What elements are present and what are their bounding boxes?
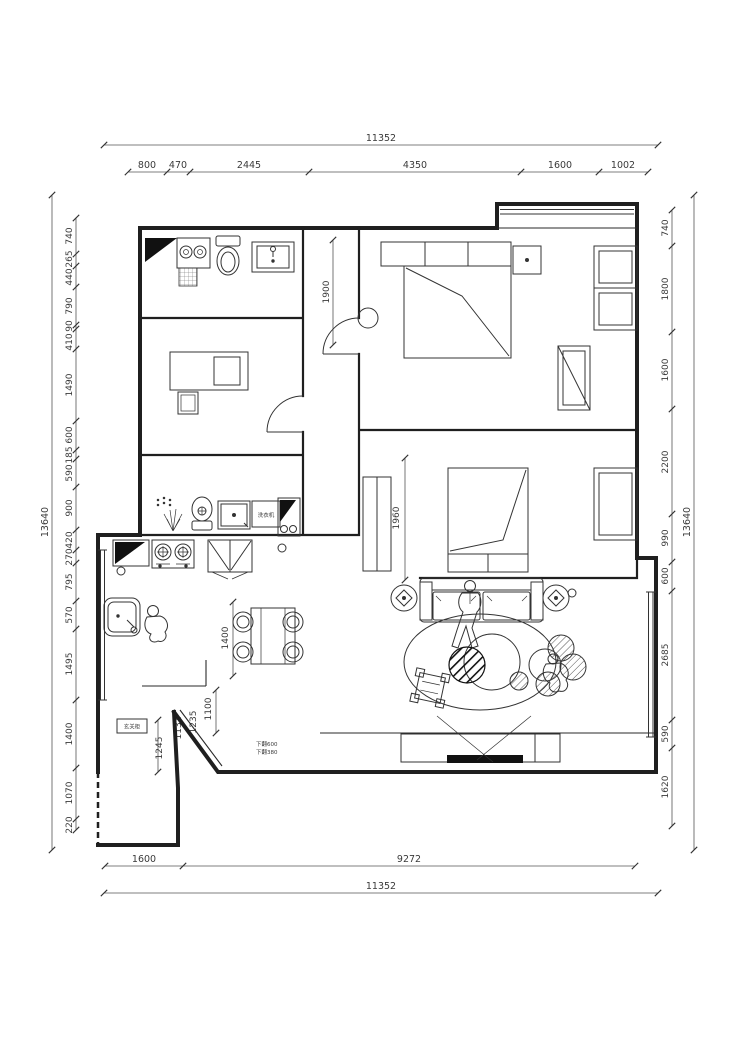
desk [170, 352, 248, 390]
tv-screen [447, 755, 523, 763]
ceiling-note-1: 下翻600 [256, 740, 278, 748]
dim-bottom-0: 1600 [132, 854, 156, 865]
side-lamp-left [391, 585, 417, 611]
dining-chairs [233, 612, 303, 662]
toilet-2-icon [192, 497, 212, 530]
dim-top-2: 2445 [237, 160, 261, 171]
vanity-sink-icon [252, 242, 294, 272]
armchair [529, 635, 586, 696]
dim-right-8: 1620 [661, 775, 671, 798]
dim-left-6: 1490 [65, 373, 75, 396]
dim-left-9: 590 [65, 464, 75, 481]
side-lamp-right [543, 585, 569, 611]
study-room [170, 352, 248, 414]
dim-left-8: 185 [65, 446, 75, 463]
door-bedroom1 [323, 318, 359, 354]
dim-left-10: 900 [65, 499, 75, 516]
fridge-icon [208, 540, 252, 579]
dim-entry-1245: 1245 [155, 737, 165, 760]
dim-bottom-1: 9272 [397, 854, 421, 865]
dim-right-4: 990 [661, 529, 671, 546]
dim-left-2: 440 [65, 268, 75, 285]
dim-right-7: 590 [661, 725, 671, 742]
bed-1 [404, 266, 511, 358]
corner-counter-icon [145, 238, 177, 262]
dining [233, 608, 303, 664]
dimension-labels-right: 13640 740 1800 1600 2200 990 600 2685 59… [661, 219, 693, 798]
interior-walls [140, 228, 637, 578]
dim-top-5: 1002 [611, 160, 635, 171]
dim-left-13: 795 [65, 573, 75, 590]
exterior-wall-entry [98, 712, 178, 845]
stool [358, 308, 378, 328]
floor-drain-icon [179, 268, 197, 286]
plant-icon [157, 497, 182, 531]
dim-right-1: 1800 [661, 277, 671, 300]
dim-left-12: 270 [65, 548, 75, 565]
dim-left-4: 90 [65, 320, 75, 332]
dim-left-0: 740 [65, 227, 75, 244]
bedroom-right [363, 468, 528, 572]
corner-cabinet-2 [278, 498, 300, 536]
dim-entry-1100: 1100 [204, 697, 214, 720]
stove-icon [152, 540, 194, 568]
dim-left-14: 570 [65, 606, 75, 623]
dim-left-1: 265 [65, 250, 75, 267]
dim-dining: 1400 [221, 626, 231, 649]
dim-top-1: 470 [169, 160, 187, 171]
kitchen-sink-icon [104, 598, 140, 636]
dim-left-5: 410 [65, 333, 75, 350]
dim-right-0: 740 [661, 219, 671, 236]
dim-top-4: 1600 [548, 160, 572, 171]
laundry-sink-icon [218, 501, 250, 529]
dim-left-16: 1400 [65, 722, 75, 745]
dim-right-overall: 13640 [682, 507, 693, 537]
dim-bottom-overall: 11352 [366, 881, 396, 892]
floor-edges [142, 228, 654, 766]
dimension-labels-bottom: 1600 9272 11352 [132, 854, 421, 892]
sofa [420, 578, 543, 622]
bathroom-middle: 洗衣机 [157, 497, 300, 536]
floor-plan-page: 11352 800 470 2445 4350 1600 1002 1600 9… [0, 0, 740, 1057]
headboard [381, 242, 511, 266]
door-study [267, 396, 303, 432]
bay-cabinets-right [558, 246, 637, 540]
dim-right-5: 600 [661, 567, 671, 584]
door-arcs [267, 318, 359, 432]
dim-left-11: 420 [65, 531, 75, 548]
dim-left-overall: 13640 [40, 507, 51, 537]
washing-machine-label: 洗衣机 [258, 511, 275, 519]
furniture: 洗衣机 [104, 236, 586, 763]
dim-left-3: 790 [65, 297, 75, 314]
dim-left-17: 1070 [65, 781, 75, 804]
dim-hall: 1900 [322, 280, 332, 303]
person-kitchen [145, 606, 168, 643]
bedroom-top [358, 242, 541, 358]
living-room [391, 578, 586, 763]
dim-right-3: 2200 [661, 450, 671, 473]
exterior-wall-main [140, 204, 656, 772]
dim-entry-1235: 1235 [189, 711, 199, 734]
desk-monitor [214, 357, 240, 385]
coffee-table-tray [449, 647, 485, 683]
toilet-icon [216, 236, 240, 275]
bed-2 [448, 468, 528, 554]
ceiling-note-2: 下翻380 [256, 748, 278, 756]
dim-bedroom: 1960 [392, 506, 402, 529]
bathroom-top [145, 236, 294, 286]
round-side-table [510, 672, 528, 690]
entry-cabinet-label: 玄关柜 [124, 723, 141, 731]
dimension-labels-top: 11352 800 470 2445 4350 1600 1002 [138, 133, 635, 171]
dim-top-0: 800 [138, 160, 156, 171]
dim-left-7: 600 [65, 426, 75, 443]
dim-right-2: 1600 [661, 358, 671, 381]
dim-top-3: 4350 [403, 160, 427, 171]
dim-right-6: 2685 [661, 644, 671, 667]
kitchen [104, 540, 286, 642]
window-balcony-top [500, 210, 634, 215]
floor-plan-canvas: 11352 800 470 2445 4350 1600 1002 1600 9… [0, 0, 740, 1057]
basin-unit [177, 238, 210, 268]
dim-left-15: 1495 [65, 653, 75, 676]
dim-top-overall: 11352 [366, 133, 396, 144]
dimension-labels-left: 13640 740 265 440 790 90 410 1490 600 18… [40, 227, 75, 833]
dim-left-18: 220 [65, 816, 75, 833]
